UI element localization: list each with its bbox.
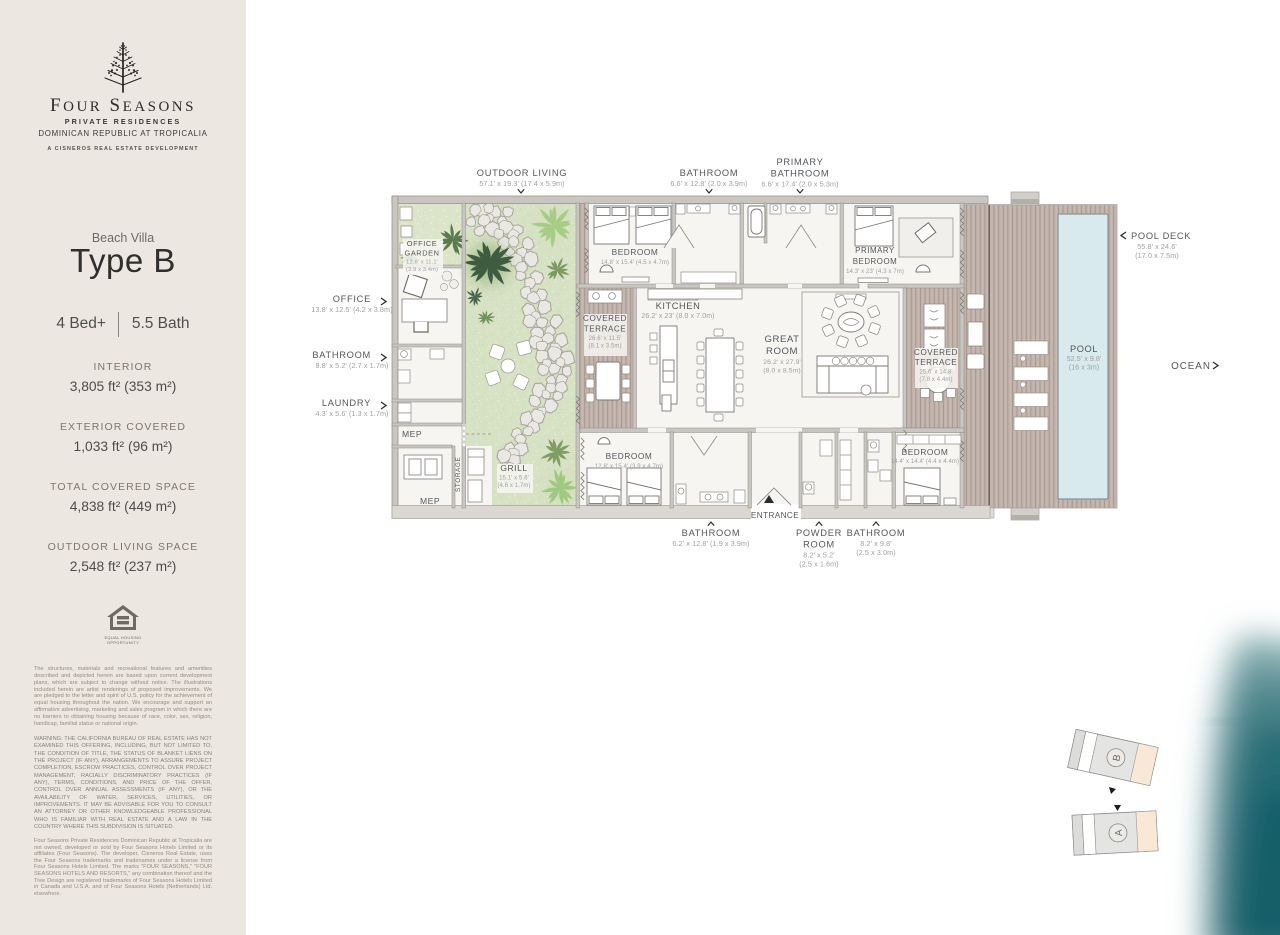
svg-text:8.8' x 5.2' (2.7 x 1.7m): 8.8' x 5.2' (2.7 x 1.7m) — [315, 361, 388, 370]
svg-text:OCEAN: OCEAN — [1171, 361, 1211, 372]
svg-text:PRIMARY: PRIMARY — [776, 157, 823, 167]
svg-text:ENTRANCE: ENTRANCE — [751, 511, 799, 520]
svg-text:(3.9 x 3.4m): (3.9 x 3.4m) — [406, 267, 438, 273]
svg-text:GREAT: GREAT — [764, 334, 799, 345]
svg-text:MEP: MEP — [402, 429, 422, 439]
svg-text:KITCHEN: KITCHEN — [656, 301, 701, 311]
svg-text:6.2' x 12.8' (1.9 x 3.9m): 6.2' x 12.8' (1.9 x 3.9m) — [672, 539, 749, 548]
svg-text:MEP: MEP — [420, 496, 440, 506]
svg-text:26.2' x 27.9': 26.2' x 27.9' — [763, 359, 801, 366]
svg-text:OFFICE: OFFICE — [333, 294, 371, 304]
svg-text:POOL DECK: POOL DECK — [1131, 231, 1191, 241]
svg-text:BATHROOM: BATHROOM — [680, 168, 739, 178]
svg-text:14.4' x 14.4' (4.4 x 4.4m): 14.4' x 14.4' (4.4 x 4.4m) — [891, 459, 959, 465]
svg-text:COVERED: COVERED — [583, 314, 627, 323]
svg-text:A: A — [1114, 829, 1125, 837]
svg-text:BEDROOM: BEDROOM — [612, 247, 659, 257]
svg-text:GRILL: GRILL — [500, 463, 527, 473]
svg-text:ROOM: ROOM — [803, 540, 835, 550]
svg-text:12.8' x 11.1': 12.8' x 11.1' — [406, 260, 438, 266]
svg-text:(4.6 x 1.7m): (4.6 x 1.7m) — [497, 483, 530, 489]
svg-text:(8.0 x 8.5m): (8.0 x 8.5m) — [763, 368, 800, 375]
svg-text:25.6' x 14.8': 25.6' x 14.8' — [919, 369, 952, 375]
svg-text:BATHROOM: BATHROOM — [771, 169, 830, 179]
svg-text:15.1' x 5.6': 15.1' x 5.6' — [499, 475, 529, 481]
svg-text:57.1' x 19.3' (17.4 x 5.9m): 57.1' x 19.3' (17.4 x 5.9m) — [479, 179, 564, 188]
svg-text:14.8' x 15.4' (4.5 x 4.7m): 14.8' x 15.4' (4.5 x 4.7m) — [601, 260, 669, 266]
svg-text:13.8' x 12.5' (4.2 x 3.8m): 13.8' x 12.5' (4.2 x 3.8m) — [311, 305, 392, 314]
svg-text:4.3' x 5.6' (1.3 x 1.7m): 4.3' x 5.6' (1.3 x 1.7m) — [315, 409, 388, 418]
svg-text:LAUNDRY: LAUNDRY — [322, 398, 371, 408]
svg-text:BEDROOM: BEDROOM — [606, 451, 653, 461]
svg-text:6.6' x 12.8' (2.0 x 3.9m): 6.6' x 12.8' (2.0 x 3.9m) — [670, 179, 747, 188]
svg-text:POWDER: POWDER — [796, 528, 842, 538]
svg-text:BATHROOM: BATHROOM — [847, 528, 906, 538]
svg-text:STORAGE: STORAGE — [455, 457, 462, 492]
svg-text:26.2' x 23' (8.0 x 7.0m): 26.2' x 23' (8.0 x 7.0m) — [641, 313, 714, 320]
svg-text:8.2' x 5.2': 8.2' x 5.2' — [803, 551, 835, 560]
svg-text:ROOM: ROOM — [766, 346, 798, 357]
svg-text:BEDROOM: BEDROOM — [853, 257, 898, 266]
svg-text:(16 x 3m): (16 x 3m) — [1069, 364, 1099, 371]
svg-text:8.2' x 9.8': 8.2' x 9.8' — [860, 539, 892, 548]
svg-text:COVERED: COVERED — [914, 348, 958, 357]
svg-text:52.5' x 9.8': 52.5' x 9.8' — [1067, 356, 1102, 363]
svg-text:PRIMARY: PRIMARY — [855, 246, 895, 255]
svg-text:TERRACE: TERRACE — [915, 358, 958, 367]
svg-text:OFFICE: OFFICE — [407, 239, 437, 248]
svg-text:12.8' x 15.4' (3.9 x 4.7m): 12.8' x 15.4' (3.9 x 4.7m) — [595, 464, 663, 470]
svg-text:GARDEN: GARDEN — [405, 249, 440, 258]
svg-text:(7.8 x 4.4m): (7.8 x 4.4m) — [919, 377, 952, 383]
svg-text:6.6' x 17.4' (2.0 x 5.3m): 6.6' x 17.4' (2.0 x 5.3m) — [761, 180, 838, 189]
svg-text:(8.1 x 3.5m): (8.1 x 3.5m) — [588, 344, 621, 350]
svg-text:26.6' x 11.5': 26.6' x 11.5' — [589, 336, 622, 342]
svg-text:POOL: POOL — [1070, 344, 1098, 354]
svg-text:(2.5 x 1.6m): (2.5 x 1.6m) — [799, 560, 839, 569]
svg-text:55.8' x 24.6': 55.8' x 24.6' — [1137, 242, 1177, 251]
svg-text:(17.0 x 7.5m): (17.0 x 7.5m) — [1135, 251, 1179, 260]
svg-text:BATHROOM: BATHROOM — [682, 528, 741, 538]
svg-text:BATHROOM: BATHROOM — [312, 350, 371, 360]
svg-text:TERRACE: TERRACE — [584, 325, 627, 334]
svg-text:(2.5 x 3.0m): (2.5 x 3.0m) — [856, 548, 896, 557]
svg-text:BEDROOM: BEDROOM — [902, 447, 949, 457]
svg-text:14.3' x 23' (4.3 x 7m): 14.3' x 23' (4.3 x 7m) — [846, 269, 904, 275]
svg-text:OUTDOOR LIVING: OUTDOOR LIVING — [477, 168, 567, 178]
